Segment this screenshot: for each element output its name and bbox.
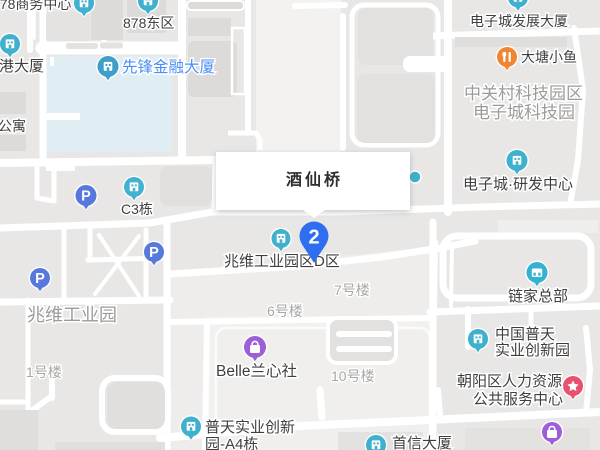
svg-text:P: P <box>35 271 45 287</box>
svg-text:首信大厦: 首信大厦 <box>392 435 452 450</box>
svg-text:1号楼: 1号楼 <box>26 364 62 380</box>
svg-text:园-A4栋: 园-A4栋 <box>205 435 258 450</box>
svg-text:实业创新园: 实业创新园 <box>495 342 570 359</box>
svg-text:Belle兰心社: Belle兰心社 <box>216 362 297 380</box>
svg-text:6号楼: 6号楼 <box>267 303 303 319</box>
svg-text:电子城·研发中心: 电子城·研发中心 <box>463 176 573 193</box>
svg-text:878商务中心: 878商务中心 <box>0 0 71 12</box>
svg-text:兆维工业园区D区: 兆维工业园区D区 <box>224 253 340 270</box>
svg-text:公共服务中心: 公共服务中心 <box>473 391 563 408</box>
svg-text:电子城科技园: 电子城科技园 <box>473 103 575 122</box>
svg-text:先锋金融大厦: 先锋金融大厦 <box>122 58 215 76</box>
svg-text:2: 2 <box>308 227 319 249</box>
svg-text:公寓: 公寓 <box>0 118 26 134</box>
svg-text:中国普天: 中国普天 <box>495 326 555 343</box>
svg-text:电子城发展大厦: 电子城发展大厦 <box>470 13 568 29</box>
svg-text:7号楼: 7号楼 <box>334 282 370 298</box>
svg-text:10号楼: 10号楼 <box>331 368 375 384</box>
svg-text:国港大厦: 国港大厦 <box>0 58 44 75</box>
svg-text:P: P <box>149 245 159 261</box>
svg-text:酒仙桥: 酒仙桥 <box>286 170 343 189</box>
svg-text:兆维工业园: 兆维工业园 <box>27 305 117 325</box>
svg-text:中关村科技园区: 中关村科技园区 <box>464 84 583 103</box>
svg-text:大塘小鱼: 大塘小鱼 <box>521 49 577 65</box>
svg-text:普天实业创新: 普天实业创新 <box>205 419 295 436</box>
svg-text:朝阳区人力资源: 朝阳区人力资源 <box>457 373 562 390</box>
svg-text:878东区: 878东区 <box>123 15 174 31</box>
svg-text:C3栋: C3栋 <box>121 201 153 217</box>
svg-text:链家总部: 链家总部 <box>508 288 568 305</box>
svg-text:P: P <box>81 189 91 205</box>
